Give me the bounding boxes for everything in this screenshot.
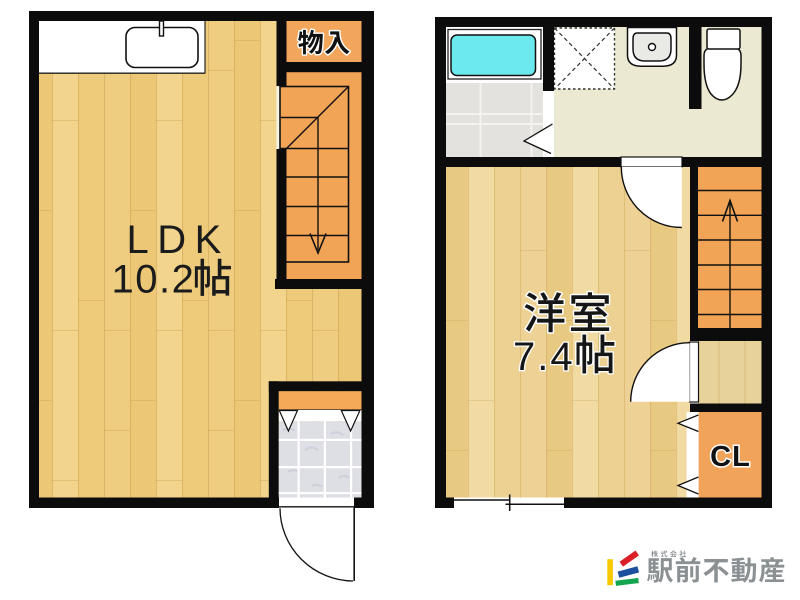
svg-text:10.2: 10.2 <box>112 258 196 302</box>
svg-text:CL: CL <box>710 441 751 473</box>
svg-text:LDK: LDK <box>127 218 230 262</box>
svg-text:7.4: 7.4 <box>513 335 575 379</box>
